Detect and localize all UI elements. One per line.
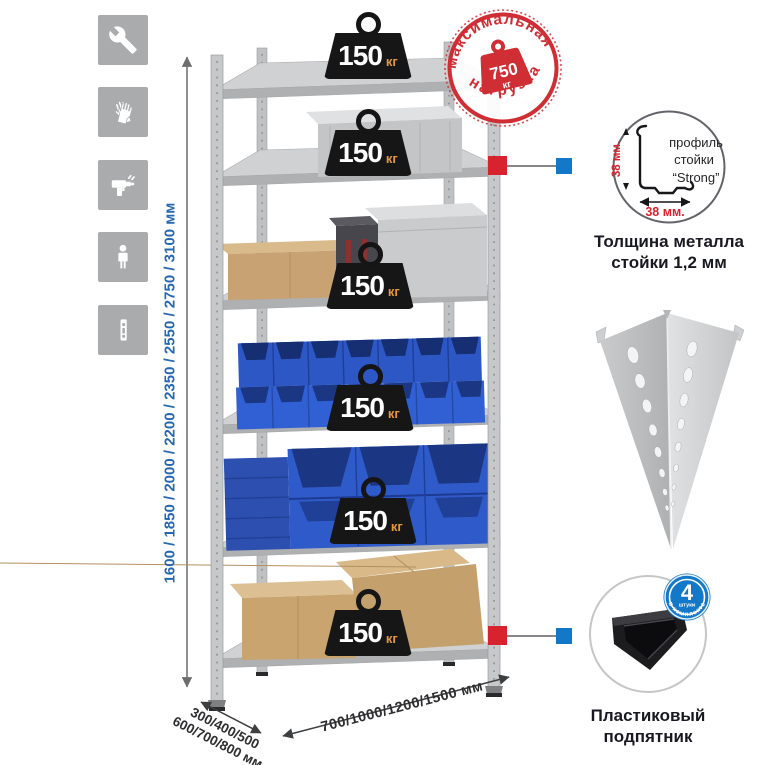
weight-value: 150 — [343, 505, 387, 537]
blue-marker-square — [556, 628, 572, 644]
profile-caption-line2: стойки 1,2 мм — [580, 252, 758, 273]
profile-label-line1: профиль — [669, 135, 723, 150]
wrench-icon — [108, 25, 138, 55]
weight-handle — [358, 364, 383, 389]
drill-tile — [98, 160, 148, 210]
infographic-canvas: 1600 / 1850 / 2000 / 2200 / 2350 / 2550 … — [0, 0, 765, 765]
shelf-weight-badge-3: 150кг — [326, 242, 414, 309]
angle-post-image — [596, 310, 744, 549]
height-dimension-label: 1600 / 1850 / 2000 / 2200 / 2350 / 2550 … — [162, 203, 179, 584]
foot-caption-line1: Пластиковый — [573, 705, 723, 726]
drill-icon — [108, 170, 138, 200]
blue-marker-square — [556, 158, 572, 174]
assembly-tile — [98, 15, 148, 65]
profile-caption-line1: Толщина металла — [580, 231, 758, 252]
profile-callout-connector — [488, 156, 572, 175]
profile-vertical-dim: 38 мм. — [611, 141, 623, 177]
weight-unit: кг — [386, 631, 398, 646]
foot-callout-connector — [488, 626, 572, 645]
weight-handle — [356, 109, 381, 134]
quantity-badge: 4 штуки в комплекте — [662, 572, 712, 622]
gloves-tile — [98, 87, 148, 137]
foot-caption-line2: подпятник — [573, 726, 723, 747]
shelf-weight-badge-1: 150кг — [324, 12, 412, 79]
rack-post-icon — [108, 315, 138, 345]
weight-value: 150 — [338, 40, 382, 72]
weight-value: 150 — [338, 617, 382, 649]
weight-handle — [361, 477, 386, 502]
weight-value: 150 — [338, 137, 382, 169]
person-tile — [98, 232, 148, 282]
weight-unit: кг — [391, 519, 403, 534]
weight-value: 150 — [340, 392, 384, 424]
badge-quantity-unit: штуки — [679, 603, 696, 609]
shelf-weight-badge-2: 150кг — [324, 109, 412, 176]
red-marker-square — [488, 626, 507, 645]
profile-horizontal-dim: 38 мм. — [645, 205, 684, 219]
foot-caption: Пластиковый подпятник — [573, 705, 723, 748]
weight-value: 150 — [340, 270, 384, 302]
weight-unit: кг — [386, 151, 398, 166]
weight-handle — [356, 589, 381, 614]
badge-quantity-value: 4 — [681, 580, 694, 605]
weight-handle — [356, 12, 381, 37]
profile-label-line3: “Strong” — [673, 170, 720, 185]
weight-handle — [358, 242, 383, 267]
shelf-weight-badge-5: 150кг — [329, 477, 417, 544]
rack-post-tile — [98, 305, 148, 355]
post-profile-detail: 38 мм. 38 мм. профиль стойки “Strong” — [599, 97, 739, 237]
red-marker-square — [488, 156, 507, 175]
profile-caption: Толщина металла стойки 1,2 мм — [580, 231, 758, 274]
weight-unit: кг — [386, 54, 398, 69]
shelf-weight-badge-6: 150кг — [324, 589, 412, 656]
person-icon — [108, 242, 138, 272]
shelf-weight-badge-4: 150кг — [326, 364, 414, 431]
gloves-icon — [108, 97, 138, 127]
profile-label-line2: стойки — [674, 152, 714, 167]
weight-unit: кг — [388, 406, 400, 421]
weight-unit: кг — [388, 284, 400, 299]
